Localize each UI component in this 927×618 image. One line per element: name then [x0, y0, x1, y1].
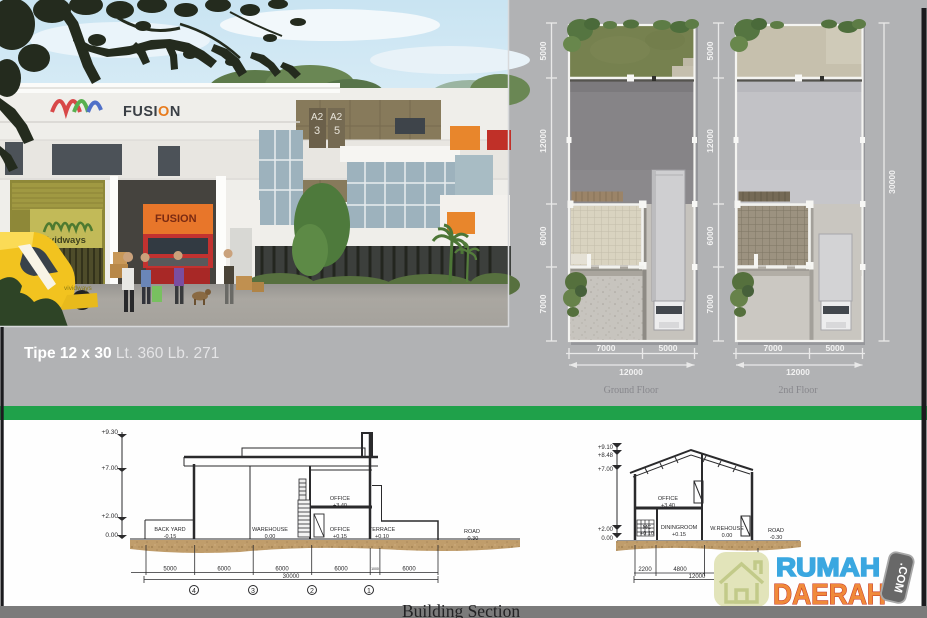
svg-text:12000: 12000	[619, 367, 643, 377]
svg-text:4800: 4800	[673, 567, 687, 573]
svg-text:A2: A2	[330, 112, 343, 123]
svg-text:+0.15: +0.15	[672, 532, 686, 538]
svg-text:Ground Floor: Ground Floor	[604, 385, 659, 396]
svg-text:+9.10: +9.10	[598, 445, 614, 451]
svg-text:+0.10: +0.10	[640, 531, 654, 537]
svg-text:W.REHOUSE: W.REHOUSE	[710, 526, 744, 532]
svg-text:2nd Floor: 2nd Floor	[778, 385, 818, 396]
svg-text:0.00: 0.00	[105, 532, 118, 539]
svg-text:A2: A2	[311, 112, 324, 123]
svg-text:5: 5	[334, 125, 340, 137]
svg-text:OFFICE: OFFICE	[330, 496, 350, 502]
svg-text:-0.30: -0.30	[770, 535, 783, 541]
svg-text:+3.40: +3.40	[661, 503, 675, 509]
svg-text:RUMAH: RUMAH	[776, 552, 880, 582]
svg-text:12000: 12000	[786, 367, 810, 377]
svg-text:12000: 12000	[538, 129, 548, 153]
svg-text:2200: 2200	[638, 567, 652, 573]
svg-text:+2.00: +2.00	[102, 513, 119, 520]
svg-text:7000: 7000	[538, 294, 548, 313]
svg-text:6000: 6000	[402, 567, 416, 573]
svg-text:7000: 7000	[764, 343, 783, 353]
svg-text:7000: 7000	[705, 294, 715, 313]
svg-text:Tipe 12 x 30 Lt. 360 Lb. 271: Tipe 12 x 30 Lt. 360 Lb. 271	[24, 345, 219, 362]
svg-text:30000: 30000	[887, 170, 897, 194]
svg-text:+0.15: +0.15	[333, 534, 347, 540]
svg-text:5000: 5000	[659, 343, 678, 353]
svg-text:vividways: vividways	[64, 285, 93, 292]
svg-text:5000: 5000	[705, 41, 715, 60]
svg-text:4: 4	[192, 588, 196, 595]
svg-text:+8.48: +8.48	[598, 453, 614, 459]
svg-text:0.00: 0.00	[601, 536, 613, 542]
svg-text:0.00: 0.00	[265, 534, 276, 540]
svg-text:12000: 12000	[689, 574, 706, 580]
svg-text:30000: 30000	[283, 574, 300, 580]
svg-text:+0.10: +0.10	[375, 534, 389, 540]
svg-text:-0.15: -0.15	[164, 534, 177, 540]
svg-text:6000: 6000	[275, 567, 289, 573]
svg-text:+2.00: +2.00	[598, 527, 614, 533]
svg-text:BACK YARD: BACK YARD	[154, 527, 185, 533]
svg-text:12000: 12000	[705, 129, 715, 153]
svg-text:OFFICE: OFFICE	[658, 496, 678, 502]
svg-text:TERRACE: TERRACE	[369, 527, 396, 533]
svg-text:1: 1	[367, 588, 371, 595]
svg-text:2: 2	[310, 588, 314, 595]
svg-text:5000: 5000	[826, 343, 845, 353]
svg-text:3: 3	[314, 125, 320, 137]
svg-text:5000: 5000	[163, 567, 177, 573]
svg-text:Building Section: Building Section	[402, 601, 520, 618]
svg-text:OFFICE: OFFICE	[330, 527, 350, 533]
svg-text:+9.30: +9.30	[102, 429, 119, 436]
svg-text:6000: 6000	[705, 226, 715, 245]
svg-text:5000: 5000	[538, 41, 548, 60]
svg-text:ROAD: ROAD	[768, 528, 784, 534]
svg-text:1000: 1000	[371, 567, 379, 571]
svg-text:+7.00: +7.00	[102, 465, 119, 472]
svg-text:+7.00: +7.00	[598, 467, 614, 473]
svg-text:DININGROOM: DININGROOM	[661, 525, 698, 531]
svg-text:ROAD: ROAD	[464, 529, 480, 535]
svg-text:6000: 6000	[217, 567, 231, 573]
svg-text:0.00: 0.00	[722, 533, 733, 539]
svg-text:6000: 6000	[538, 226, 548, 245]
svg-text:WAREHOUSE: WAREHOUSE	[252, 527, 288, 533]
svg-text:+3.40: +3.40	[333, 503, 347, 509]
svg-text:3: 3	[251, 588, 255, 595]
svg-text:FUSION: FUSION	[155, 213, 197, 225]
svg-text:6000: 6000	[334, 567, 348, 573]
svg-text:7000: 7000	[597, 343, 616, 353]
svg-text:FUSION: FUSION	[123, 104, 181, 120]
